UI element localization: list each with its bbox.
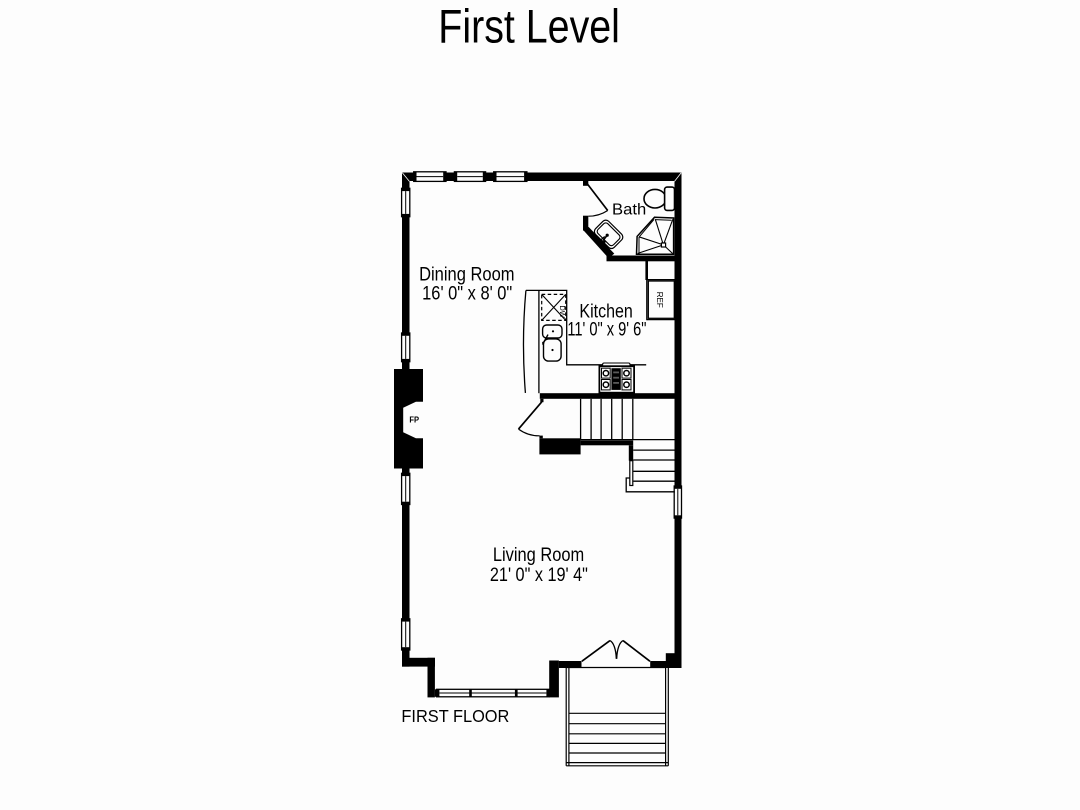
svg-text:FIRST FLOOR: FIRST FLOOR xyxy=(401,707,509,727)
svg-text:Bath: Bath xyxy=(612,201,646,218)
svg-text:16' 0" x 8' 0": 16' 0" x 8' 0" xyxy=(422,282,512,304)
svg-text:Living Room: Living Room xyxy=(493,544,584,566)
svg-text:First Level: First Level xyxy=(438,1,620,53)
svg-text:REF: REF xyxy=(655,292,664,308)
svg-text:DW: DW xyxy=(558,305,567,318)
svg-text:11' 0" x 9' 6": 11' 0" x 9' 6" xyxy=(567,319,646,340)
svg-text:21' 0" x 19' 4": 21' 0" x 19' 4" xyxy=(490,564,588,586)
svg-text:FP: FP xyxy=(409,415,419,424)
